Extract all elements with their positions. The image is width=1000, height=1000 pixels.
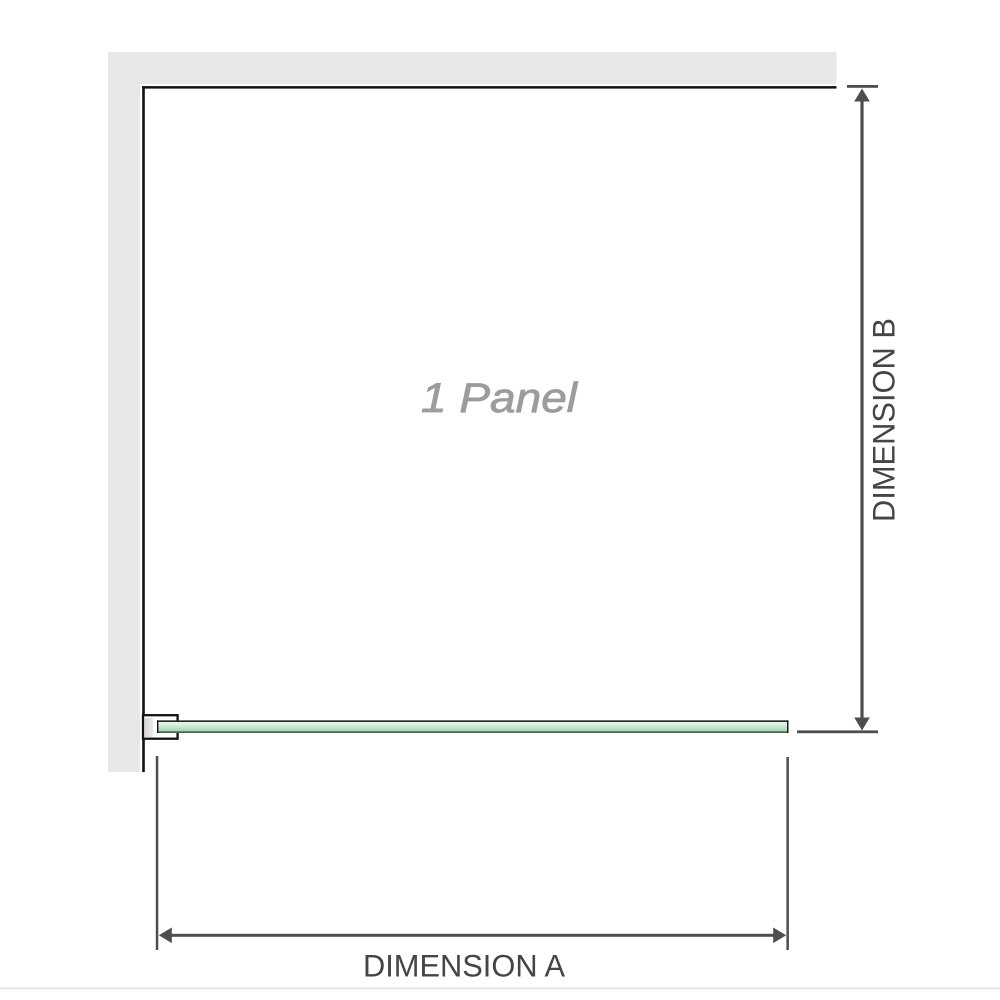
svg-text:DIMENSION B: DIMENSION B xyxy=(866,318,902,522)
svg-text:1 Panel: 1 Panel xyxy=(421,374,579,421)
svg-text:DIMENSION A: DIMENSION A xyxy=(363,948,565,984)
